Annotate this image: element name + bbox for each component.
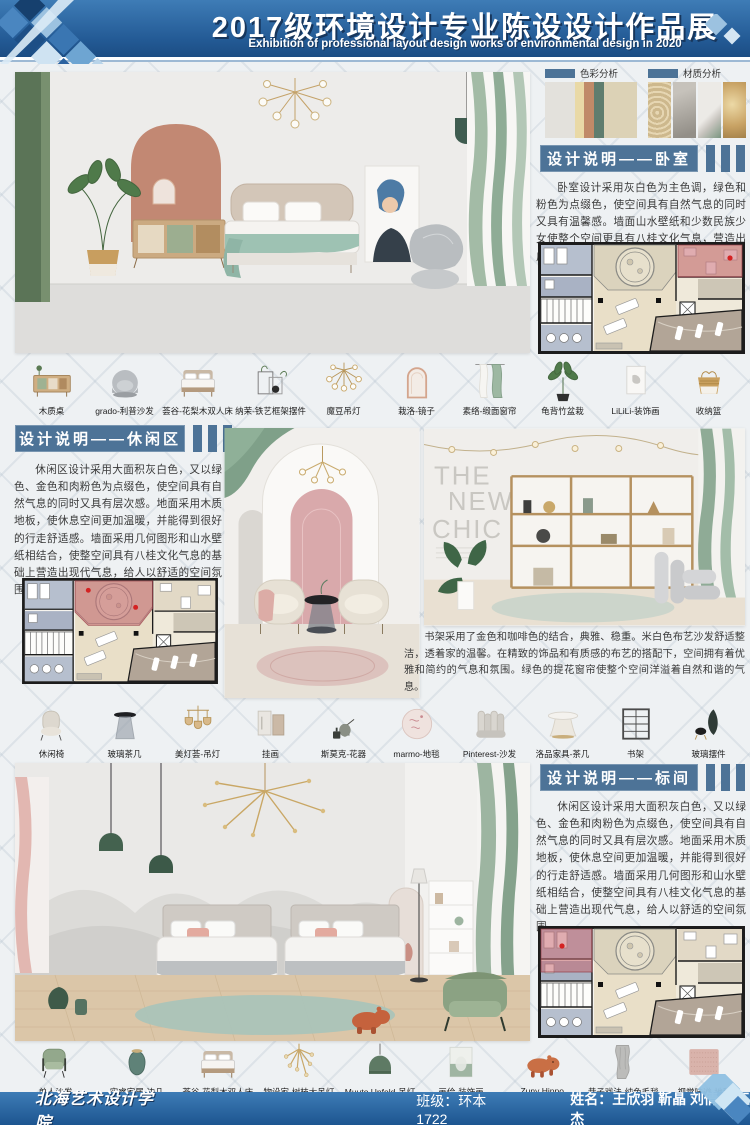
standard-room-render bbox=[15, 763, 530, 1041]
section-title-bars bbox=[706, 145, 745, 172]
furniture-label: LiLiLi-装饰画 bbox=[611, 405, 659, 417]
material-swatch-drape bbox=[698, 82, 721, 138]
furniture-item: 斯莫克-花器 bbox=[307, 700, 380, 760]
furniture-item: grado-利普沙发 bbox=[88, 357, 161, 417]
armchair-icon bbox=[34, 1038, 78, 1084]
bookshelf-render: THE NEW CHIC bbox=[424, 428, 745, 626]
wall-text-line2: NEW bbox=[448, 488, 514, 516]
furniture-item: Pinterest-沙发 bbox=[453, 700, 526, 760]
iron-frame-icon bbox=[249, 357, 293, 403]
material-swatch-gold bbox=[723, 82, 746, 138]
blanket-icon bbox=[601, 1038, 645, 1084]
dome-pendant-icon bbox=[358, 1038, 402, 1084]
section-title-bars bbox=[706, 764, 745, 791]
bedroom-floorplan bbox=[538, 242, 745, 354]
furniture-item: 收纳篮 bbox=[672, 357, 745, 417]
footer-bar: 北海艺术设计学院 班级：环本1722 姓名：王欣羽 靳晶 刘倩 刘玉杰 bbox=[0, 1092, 750, 1125]
furniture-label: 挂画 bbox=[262, 748, 279, 760]
section-title-leisure: 设计说明——休闲区 bbox=[15, 425, 185, 452]
plant-icon bbox=[541, 357, 585, 403]
furniture-label: marmo-地毯 bbox=[393, 748, 439, 760]
abstract-art-icon bbox=[439, 1038, 483, 1084]
label-bar bbox=[545, 69, 575, 78]
arch-mirror-icon bbox=[395, 357, 439, 403]
furniture-item: 玻璃茶几 bbox=[88, 700, 161, 760]
furniture-item: 挂画 bbox=[234, 700, 307, 760]
standard-floorplan bbox=[538, 926, 745, 1038]
leisure-area-render bbox=[224, 428, 420, 698]
furniture-row-2: 休闲椅 玻璃茶几 美灯荟-吊灯 挂画 斯莫克-花器 marmo-地毯 Pinte… bbox=[15, 700, 745, 760]
swatch bbox=[545, 82, 575, 138]
swatch bbox=[604, 82, 637, 138]
furniture-row-1: 木质桌 grado-利普沙发 荟谷-花梨木双人床 纳茉-铁艺框架摆件 魔豆吊灯 … bbox=[15, 357, 745, 417]
furniture-item: 洛品家具-茶几 bbox=[526, 700, 599, 760]
furniture-item: 栽洛-镜子 bbox=[380, 357, 453, 417]
basket-icon bbox=[687, 357, 731, 403]
furniture-item: Muuto Unfold-吊灯 bbox=[339, 1038, 420, 1098]
bookshelf-icon bbox=[614, 700, 658, 746]
flower-vase-icon bbox=[322, 700, 366, 746]
poster-subtitle: Exhibition of professional layout design… bbox=[185, 38, 745, 50]
furniture-label: 荟谷-花梨木双人床 bbox=[162, 405, 233, 417]
pink-rug-icon bbox=[682, 1038, 726, 1084]
vase-side-table-icon bbox=[115, 1038, 159, 1084]
furniture-item: 休闲椅 bbox=[15, 700, 88, 760]
hippo-icon bbox=[520, 1038, 564, 1084]
standard-description: 休闲区设计采用大面积灰白色，又以绿色、金色和肉粉色为点缀色，使空间具有自然气息的… bbox=[536, 799, 746, 936]
swatch bbox=[575, 82, 584, 138]
color-analysis-label: 色彩分析 bbox=[545, 66, 618, 80]
furniture-item: 画佮-装饰画 bbox=[421, 1038, 502, 1098]
class-info: 班级：环本1722 bbox=[416, 1091, 510, 1125]
glass-table-icon bbox=[103, 700, 147, 746]
bookshelf-note: 书架采用了金色和咖啡色的结合，典雅、稳重。米白色布艺沙发舒适整洁，透着家的温馨。… bbox=[404, 630, 745, 696]
furniture-item: 物设家-树枝大吊灯 bbox=[258, 1038, 339, 1098]
furniture-label: 玻璃茶几 bbox=[107, 748, 141, 760]
hanging-art-icon bbox=[249, 700, 293, 746]
wood-cabinet-icon bbox=[30, 357, 74, 403]
furniture-label: 龟背竹盆栽 bbox=[541, 405, 584, 417]
color-analysis-swatches bbox=[545, 82, 637, 138]
furniture-label: grado-利普沙发 bbox=[95, 405, 154, 417]
double-bed-icon bbox=[176, 357, 220, 403]
curtain-icon bbox=[468, 357, 512, 403]
furniture-label: 栽洛-镜子 bbox=[398, 405, 435, 417]
header-bar: 2017级环境设计专业陈设设计作品展 Exhibition of profess… bbox=[0, 0, 750, 60]
chandelier-icon bbox=[322, 357, 366, 403]
furniture-item: 荟谷-花梨木双人床 bbox=[161, 357, 234, 417]
furniture-label: 休闲椅 bbox=[39, 748, 65, 760]
swatch bbox=[594, 82, 604, 138]
wall-text-line1: THE bbox=[434, 462, 492, 490]
label-bar bbox=[648, 69, 678, 78]
furniture-label: 收纳篮 bbox=[696, 405, 722, 417]
furniture-item: 荟谷-花梨木双人床 bbox=[177, 1038, 258, 1098]
furniture-item: 木质桌 bbox=[15, 357, 88, 417]
swatch bbox=[584, 82, 594, 138]
round-table-icon bbox=[541, 700, 585, 746]
furniture-item: 素络-缎面窗帘 bbox=[453, 357, 526, 417]
furniture-item: LiLiLi-装饰画 bbox=[599, 357, 672, 417]
furniture-item: 美灯荟-吊灯 bbox=[161, 700, 234, 760]
art-print-icon bbox=[614, 357, 658, 403]
material-analysis-label: 材质分析 bbox=[648, 66, 721, 80]
furniture-item: 龟背竹盆栽 bbox=[526, 357, 599, 417]
material-swatch-fabric bbox=[673, 82, 696, 138]
furniture-label: 素络-缎面窗帘 bbox=[463, 405, 517, 417]
furniture-label: 洛品家具-茶几 bbox=[536, 748, 590, 760]
leisure-floorplan bbox=[22, 578, 218, 684]
furniture-label: 纳茉-铁艺框架摆件 bbox=[235, 405, 306, 417]
furniture-label: 美灯荟-吊灯 bbox=[175, 748, 220, 760]
double-bed-icon bbox=[196, 1038, 240, 1084]
school-name: 北海艺术设计学院 bbox=[35, 1085, 161, 1125]
wall-text-line3: CHIC bbox=[432, 516, 503, 544]
furniture-item: 魔豆吊灯 bbox=[307, 357, 380, 417]
furniture-item: 玻璃摆件 bbox=[672, 700, 745, 760]
furniture-item: 纳茉-铁艺框架摆件 bbox=[234, 357, 307, 417]
furniture-label: 木质桌 bbox=[39, 405, 65, 417]
branch-chandelier-icon bbox=[277, 1038, 321, 1084]
bedroom-render bbox=[15, 72, 530, 353]
furniture-item: 书架 bbox=[599, 700, 672, 760]
material-analysis-swatches bbox=[648, 82, 746, 138]
material-swatch-wood bbox=[648, 82, 671, 138]
ribbed-sofa-icon bbox=[468, 700, 512, 746]
furniture-label: 书架 bbox=[627, 748, 644, 760]
lounge-chair-icon bbox=[30, 700, 74, 746]
round-rug-icon bbox=[395, 700, 439, 746]
furniture-label: 魔豆吊灯 bbox=[326, 405, 360, 417]
section-title-bedroom: 设计说明——卧室 bbox=[540, 145, 698, 172]
furniture-item: marmo-地毯 bbox=[380, 700, 453, 760]
student-names: 姓名：王欣羽 靳晶 刘倩 刘玉杰 bbox=[570, 1089, 750, 1125]
furniture-label: Pinterest-沙发 bbox=[463, 748, 516, 760]
furniture-label: 斯莫克-花器 bbox=[321, 748, 366, 760]
glass-ornament-icon bbox=[687, 700, 731, 746]
round-sofa-icon bbox=[103, 357, 147, 403]
pendant-cluster-icon bbox=[176, 700, 220, 746]
furniture-label: 玻璃摆件 bbox=[691, 748, 725, 760]
section-title-standard: 设计说明——标间 bbox=[540, 764, 698, 791]
exhibition-poster: 2017级环境设计专业陈设设计作品展 Exhibition of profess… bbox=[0, 0, 750, 1125]
